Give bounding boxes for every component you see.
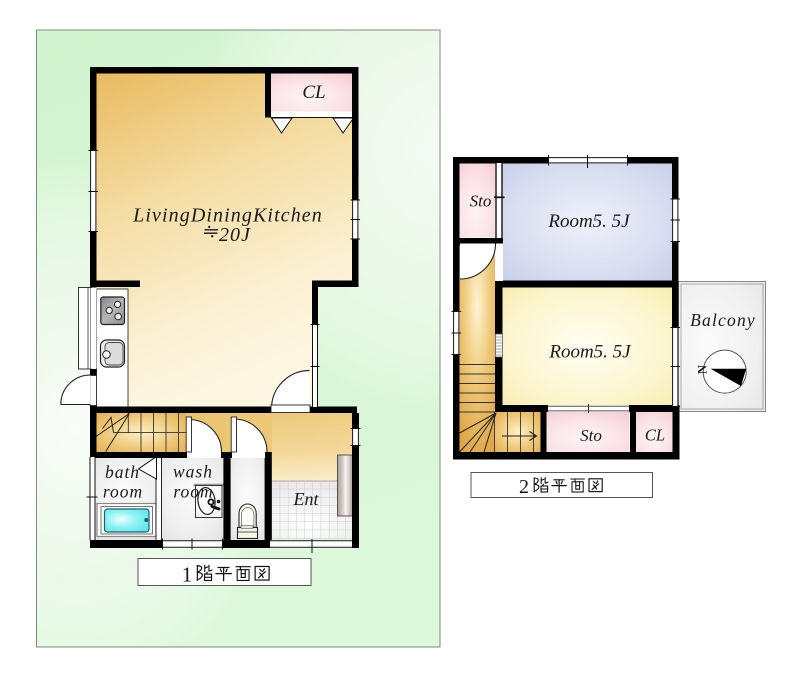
svg-text:Ent: Ent xyxy=(293,489,320,509)
svg-text:room: room xyxy=(103,482,143,502)
svg-text:Room5. 5J: Room5. 5J xyxy=(548,342,632,363)
svg-text:CL: CL xyxy=(302,82,325,103)
svg-text:1: 1 xyxy=(182,563,193,587)
svg-text:Balcony: Balcony xyxy=(690,310,756,330)
svg-text:Room5. 5J: Room5. 5J xyxy=(547,211,631,232)
svg-text:room: room xyxy=(173,482,213,502)
svg-text:Sto: Sto xyxy=(580,426,602,445)
svg-text:Sto: Sto xyxy=(470,192,492,211)
svg-text:20J: 20J xyxy=(219,224,251,246)
svg-text:N: N xyxy=(696,365,710,374)
svg-text:bath: bath xyxy=(105,462,140,482)
svg-text:CL: CL xyxy=(645,426,665,445)
svg-text:2: 2 xyxy=(519,476,529,498)
svg-text:wash: wash xyxy=(173,462,213,482)
